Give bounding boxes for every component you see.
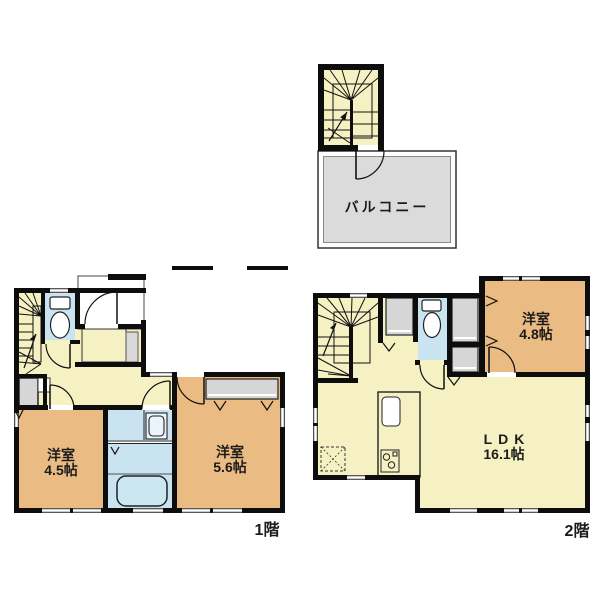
- room-5-6-label: 洋室 5.6帖: [213, 445, 246, 475]
- room-4-5-size: 4.5帖: [44, 463, 77, 478]
- kitchen-counter: [378, 392, 420, 477]
- floor1-label: 1階: [255, 516, 280, 540]
- storage-counter: [126, 332, 138, 362]
- under-stairs-closet: [19, 378, 38, 407]
- storage-room: [82, 329, 126, 362]
- room-4-8-label: 洋室 4.8帖: [519, 312, 552, 342]
- room-5-6-size: 5.6帖: [213, 460, 246, 475]
- washing-machine-icon: [146, 413, 167, 439]
- room-4-5-name: 洋室: [44, 448, 77, 463]
- sink-icon: [382, 397, 400, 426]
- floorplan-canvas: バルコニー 洋室 4.5帖 洋室 5.6帖 洋室 4.8帖 LDK 16.1帖 …: [0, 0, 600, 600]
- floorplan-drawing: [0, 0, 600, 600]
- toilet-icon-1f: [50, 297, 70, 338]
- floor-divider-dashes: [172, 266, 288, 270]
- room-4-5-label: 洋室 4.5帖: [44, 448, 77, 478]
- room-5-6-name: 洋室: [213, 445, 246, 460]
- entry-genkan: [78, 276, 144, 329]
- room-4-8-name: 洋室: [519, 312, 552, 327]
- closet-5-6: [206, 379, 278, 399]
- balcony-label: バルコニー: [345, 197, 430, 217]
- ldk-label: LDK 16.1帖: [483, 432, 524, 462]
- ldk-size: 16.1帖: [483, 447, 524, 462]
- room-4-8-size: 4.8帖: [519, 327, 552, 342]
- bathtub-icon: [117, 476, 167, 506]
- ldk-name: LDK: [483, 432, 530, 447]
- toilet-icon-2f: [422, 300, 441, 338]
- floor2-label: 2階: [565, 517, 590, 541]
